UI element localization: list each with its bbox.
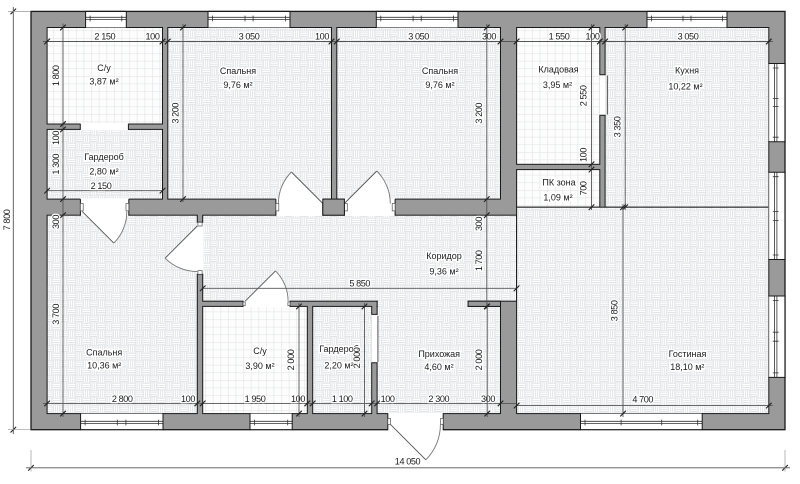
svg-text:Спальня: Спальня <box>86 348 122 358</box>
svg-text:300: 300 <box>482 31 496 41</box>
svg-text:100: 100 <box>381 394 395 404</box>
svg-text:4,60 м²: 4,60 м² <box>424 362 453 372</box>
svg-text:3 700: 3 700 <box>51 304 61 325</box>
svg-text:2,20 м²: 2,20 м² <box>324 361 353 371</box>
svg-text:2 000: 2 000 <box>474 349 484 370</box>
svg-text:18,10 м²: 18,10 м² <box>670 362 704 372</box>
svg-text:Спальня: Спальня <box>422 66 458 76</box>
svg-text:1 800: 1 800 <box>51 65 61 86</box>
svg-text:2 550: 2 550 <box>579 85 589 106</box>
svg-text:1,09 м²: 1,09 м² <box>543 193 572 203</box>
svg-text:3,90 м²: 3,90 м² <box>245 361 274 371</box>
svg-text:2 300: 2 300 <box>428 394 449 404</box>
svg-text:С/у: С/у <box>253 346 267 356</box>
svg-text:700: 700 <box>579 181 589 195</box>
svg-text:300: 300 <box>474 217 484 231</box>
svg-text:100: 100 <box>181 394 195 404</box>
svg-text:1 950: 1 950 <box>245 394 266 404</box>
svg-text:1 700: 1 700 <box>474 250 484 271</box>
svg-text:100: 100 <box>586 31 600 41</box>
svg-text:3 050: 3 050 <box>678 31 699 41</box>
svg-text:100: 100 <box>315 31 329 41</box>
svg-text:100: 100 <box>146 31 160 41</box>
svg-text:ПК зона: ПК зона <box>542 178 575 188</box>
svg-text:9,76 м²: 9,76 м² <box>425 80 454 90</box>
svg-text:Прихожая: Прихожая <box>418 349 460 359</box>
svg-text:2 150: 2 150 <box>91 181 112 191</box>
svg-text:Спальня: Спальня <box>220 66 256 76</box>
svg-text:1 550: 1 550 <box>549 31 570 41</box>
svg-text:3 350: 3 350 <box>613 116 623 137</box>
svg-text:3 050: 3 050 <box>408 31 429 41</box>
svg-text:3,87 м²: 3,87 м² <box>89 77 118 87</box>
svg-text:100: 100 <box>51 131 61 145</box>
svg-text:1 300: 1 300 <box>51 154 61 175</box>
svg-text:300: 300 <box>481 394 495 404</box>
svg-text:2 000: 2 000 <box>352 347 362 368</box>
svg-text:2,80 м²: 2,80 м² <box>89 167 118 177</box>
svg-text:3 850: 3 850 <box>610 300 620 321</box>
svg-text:2 150: 2 150 <box>94 31 115 41</box>
svg-text:Коридор: Коридор <box>426 251 462 261</box>
svg-text:3 050: 3 050 <box>239 31 260 41</box>
svg-text:1 100: 1 100 <box>332 394 353 404</box>
svg-text:9,36 м²: 9,36 м² <box>429 267 458 277</box>
svg-text:Гардероб: Гардероб <box>84 152 124 162</box>
svg-text:4 700: 4 700 <box>632 394 653 404</box>
svg-text:14 050: 14 050 <box>395 457 421 467</box>
svg-text:Кладовая: Кладовая <box>538 65 578 75</box>
svg-text:3 200: 3 200 <box>474 103 484 124</box>
svg-text:2 000: 2 000 <box>286 349 296 370</box>
svg-text:2 800: 2 800 <box>112 394 133 404</box>
svg-text:Кухня: Кухня <box>675 66 699 76</box>
svg-text:Гостиная: Гостиная <box>669 349 707 359</box>
svg-text:100: 100 <box>291 394 305 404</box>
svg-text:10,22 м²: 10,22 м² <box>668 82 702 92</box>
svg-text:3 200: 3 200 <box>171 103 181 124</box>
svg-text:100: 100 <box>579 148 589 162</box>
svg-text:9,76 м²: 9,76 м² <box>223 80 252 90</box>
svg-text:7 800: 7 800 <box>2 209 12 230</box>
svg-text:300: 300 <box>51 215 61 229</box>
svg-text:10,36 м²: 10,36 м² <box>87 361 121 371</box>
svg-text:5 850: 5 850 <box>349 279 370 289</box>
svg-text:3,95 м²: 3,95 м² <box>543 80 572 90</box>
svg-text:С/у: С/у <box>97 63 111 73</box>
